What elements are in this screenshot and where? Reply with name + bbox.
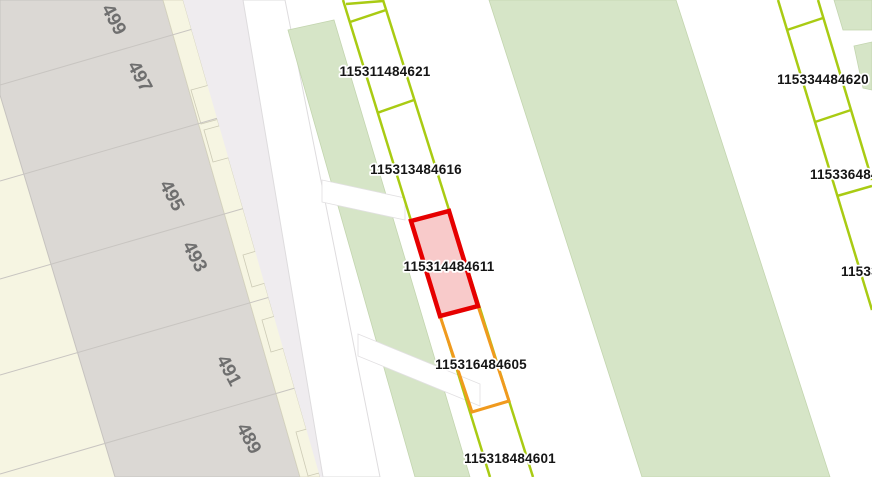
map-canvas[interactable]: 115311484621 115313484616 115314484611 1… (0, 0, 872, 477)
parcel-label-truncated: 11533 (841, 264, 872, 279)
greenspace-topright-1 (834, 0, 872, 30)
parcel-label: 115311484621 (339, 64, 430, 79)
parcel-label: 115316484605 (435, 357, 527, 372)
parcel-label-truncated: 115336484 (810, 167, 872, 182)
map-viewport[interactable]: 115311484621 115313484616 115314484611 1… (0, 0, 872, 477)
parcel-label: 115313484616 (370, 162, 462, 177)
parcel-boundary-rung (346, 1, 383, 4)
parcel-boundary-rung (350, 10, 386, 22)
parcel-boundary-rung (837, 186, 872, 196)
parcel-boundary-rung (377, 100, 414, 113)
parcel-label: 115334484620 (777, 72, 869, 87)
parcel-label-selected: 115314484611 (403, 259, 494, 274)
parcel-boundary-rung (787, 18, 823, 30)
parcel-boundary-rung (815, 110, 851, 122)
parcel-label: 115318484601 (464, 451, 556, 466)
